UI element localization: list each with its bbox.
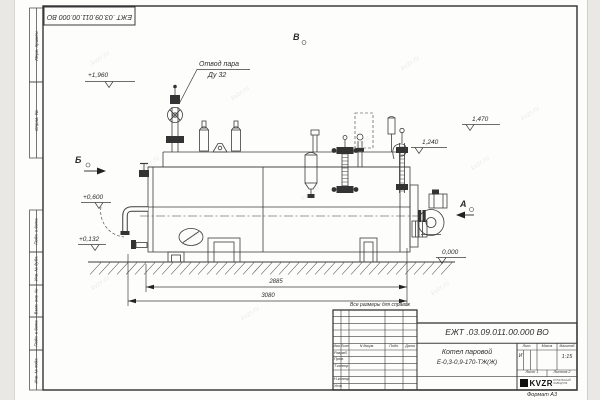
view-label-b: Б — [75, 156, 81, 165]
col-header-list: Лист — [341, 345, 349, 348]
feed-pump — [412, 190, 447, 238]
lit-label: Лит. — [517, 345, 537, 349]
masshtab-label: Масштаб — [557, 345, 577, 348]
boiler-drawing — [78, 41, 500, 307]
gauge-glass — [332, 136, 359, 194]
col-header-data: Дата — [403, 345, 417, 349]
elevation-1960: +1,960 — [88, 73, 108, 80]
row-label-prov: Пров. — [334, 358, 344, 362]
scale-value: 1:15 — [557, 355, 577, 361]
margin-col-podp-data-1: Подп. и дата — [30, 210, 44, 252]
margin-label: Перв. примен. — [34, 30, 39, 61]
drawing-sheet-viewport: kvzr.ru kvzr.ru kvzr.ru kvzr.ru kvzr.ru … — [0, 0, 600, 400]
col-header-izm: Изм. — [333, 345, 341, 348]
callout-steam-outlet: Отвод пара — [199, 61, 239, 68]
view-arrows — [84, 41, 474, 219]
margin-label: Инв. № дубл. — [34, 256, 39, 282]
sheet-number: Лист 1 — [517, 371, 547, 375]
callout-steam-size: Ду 32 — [208, 72, 226, 79]
elevation-1470: 1,470 — [472, 117, 488, 124]
logo-mark-icon — [520, 379, 528, 387]
row-label-tkontr: Т.контр. — [334, 365, 349, 369]
sheets-label: Листов — [553, 370, 567, 374]
dimension-3080: 3080 — [248, 293, 288, 299]
margin-label: Справ. № — [34, 110, 39, 131]
margin-col-sprav-no: Справ. № — [30, 82, 44, 158]
sheets-value: 2 — [568, 370, 570, 374]
elevation-0000: 0,000 — [442, 250, 458, 257]
product-title-line2: Е-0,3-0,9-170-ТЖ(Ж) — [417, 360, 517, 366]
elevation-0132: +0,132 — [79, 237, 99, 244]
margin-label: Инв. № подл. — [34, 357, 39, 383]
col-header-doc: N докум. — [349, 345, 385, 349]
margin-label: Подп. и дата — [34, 320, 39, 346]
company-sub-line2: ЗАВОД РФ — [553, 382, 571, 385]
sheet-value: 1 — [536, 370, 538, 374]
lit-value: И — [517, 354, 524, 359]
company-logo: KVZR — [520, 379, 553, 388]
margin-col-podp-data-2: Подп. и дата — [30, 317, 44, 350]
doc-number-top: ЕЖТ .03.09.011.00.000 ВО — [44, 7, 135, 25]
product-title-line1: Котел паровой — [417, 349, 517, 356]
row-label-razrab: Разраб. — [334, 352, 348, 356]
company-subtitle: КОТЕЛЬНЫЙ ЗАВОД РФ — [553, 379, 571, 385]
rear-level-gauge — [396, 128, 408, 193]
elevation-0600: +0,600 — [83, 195, 103, 202]
dimension-2885: 2885 — [256, 279, 296, 285]
reference-note: Все размеры для справок — [342, 303, 418, 308]
elevation-1240: 1,240 — [422, 140, 438, 147]
margin-col-perv-primen: Перв. примен. — [30, 8, 44, 82]
sheets-total: Листов 2 — [547, 371, 577, 375]
format-note: Формат А3 — [522, 393, 562, 399]
margin-col-vzam-inv: Взам. инв. № — [30, 285, 44, 317]
view-label-a: А — [460, 200, 467, 209]
sheet-label: Лист — [526, 370, 536, 374]
col-header-podp: Подп. — [385, 345, 403, 349]
water-column — [305, 153, 317, 199]
row-label-utv: Утв. — [334, 385, 343, 389]
front-fittings — [101, 164, 149, 250]
margin-col-inv-podl: Инв. № подл. — [30, 350, 44, 390]
view-label-v: В — [293, 33, 300, 42]
row-label-nkontr: Н.контр. — [334, 378, 350, 382]
margin-label: Взам. инв. № — [34, 288, 39, 314]
logo-word: KVZR — [530, 379, 553, 388]
doc-number-title-block: ЕЖТ .03.09.011.00.000 ВО — [417, 328, 577, 337]
massa-label: Масса — [537, 345, 557, 349]
steam-valve — [166, 85, 184, 152]
margin-label: Подп. и дата — [34, 218, 39, 244]
margin-col-inv-dubl: Инв. № дубл. — [30, 252, 44, 285]
